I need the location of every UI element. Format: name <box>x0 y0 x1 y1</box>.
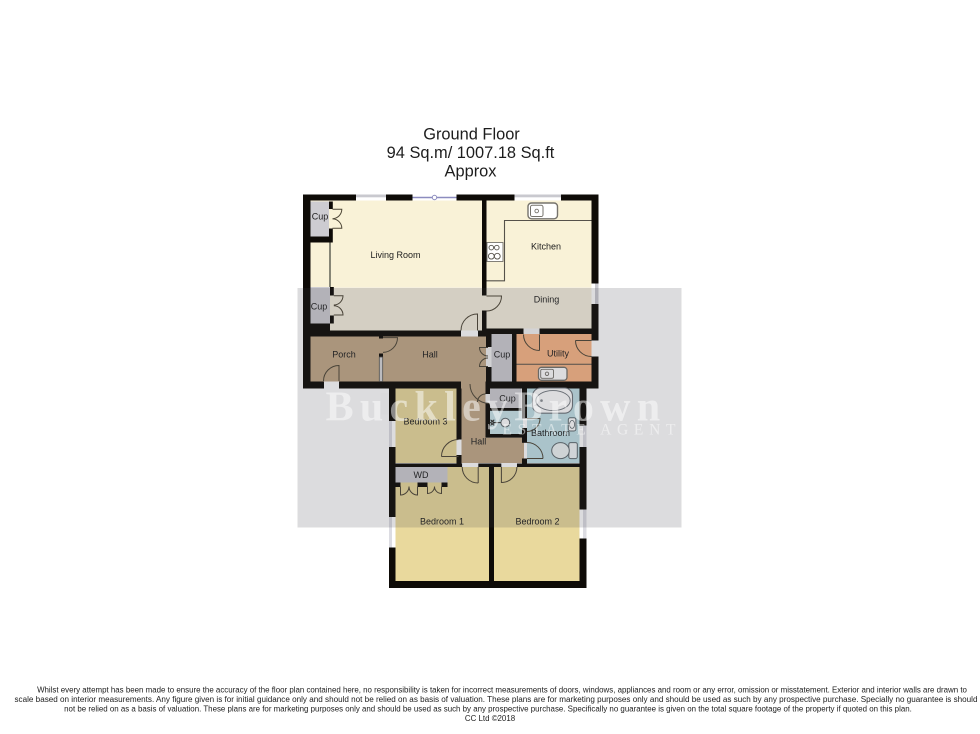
svg-text:CC Ltd ©2018: CC Ltd ©2018 <box>465 714 516 723</box>
svg-text:scale based on interior measur: scale based on interior measurements. An… <box>15 695 978 704</box>
svg-text:94 Sq.m/ 1007.18 Sq.ft: 94 Sq.m/ 1007.18 Sq.ft <box>387 144 555 162</box>
svg-text:Cup: Cup <box>312 212 329 222</box>
svg-text:Ground Floor: Ground Floor <box>423 126 520 144</box>
svg-text:not be relied on as a basis of: not be relied on as a basis of valuation… <box>64 705 912 714</box>
svg-text:ESTATE AGENTS: ESTATE AGENTS <box>503 422 696 439</box>
svg-text:Living Room: Living Room <box>370 250 420 260</box>
svg-text:Approx: Approx <box>445 162 498 180</box>
svg-text:Kitchen: Kitchen <box>531 242 561 252</box>
svg-text:Whilst every attempt has been: Whilst every attempt has been made to en… <box>37 686 967 695</box>
